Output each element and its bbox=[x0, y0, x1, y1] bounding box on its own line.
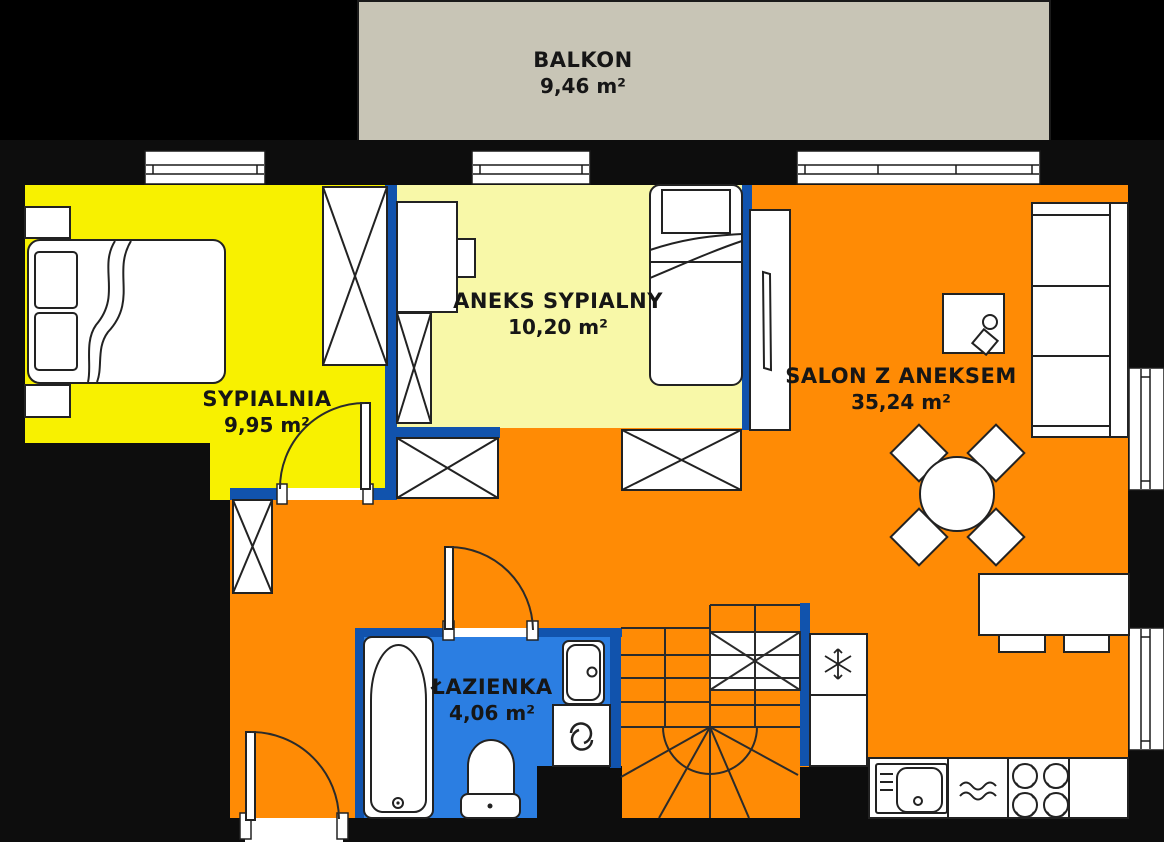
dining-table bbox=[920, 457, 994, 531]
pillow bbox=[662, 190, 730, 233]
room-label-balkon: BALKON 9,46 m² bbox=[533, 47, 632, 99]
nightstand-bottom bbox=[25, 385, 70, 417]
wall-cut-bottom-left bbox=[0, 443, 210, 842]
wardrobe-aneks bbox=[397, 313, 431, 423]
wall-aneks-bottom bbox=[397, 427, 500, 438]
wall-sypialnia-bottom-left bbox=[230, 488, 283, 500]
double-bed bbox=[28, 240, 225, 383]
wall-bottom bbox=[230, 818, 1164, 842]
tv-icon bbox=[763, 272, 771, 370]
stool bbox=[999, 635, 1045, 652]
door-leaf bbox=[246, 732, 255, 820]
pillow bbox=[35, 313, 77, 370]
wall-hall-left bbox=[210, 500, 230, 842]
wall-left bbox=[0, 140, 25, 472]
bathtub bbox=[364, 637, 433, 818]
room-area: 9,46 m² bbox=[533, 73, 632, 99]
room-area: 9,95 m² bbox=[202, 412, 331, 438]
kitchen-sink bbox=[876, 764, 947, 813]
room-area: 35,24 m² bbox=[785, 389, 1017, 415]
single-bed bbox=[650, 185, 742, 385]
wall-bath-left bbox=[355, 628, 364, 818]
tv-cabinet bbox=[750, 210, 790, 430]
door-leaf bbox=[361, 403, 370, 489]
wardrobe-salon bbox=[622, 430, 741, 490]
kitchen-counter bbox=[869, 758, 1128, 818]
window-aneks bbox=[472, 151, 590, 184]
room-area: 10,20 m² bbox=[453, 314, 663, 340]
room-name: SALON Z ANEKSEM bbox=[785, 363, 1017, 389]
desk-chair bbox=[457, 239, 475, 277]
window-salon-right-lower bbox=[1129, 628, 1164, 750]
window-sypialnia bbox=[145, 151, 265, 184]
room-label-salon: SALON Z ANEKSEM 35,24 m² bbox=[785, 363, 1017, 415]
work-desk bbox=[943, 294, 1004, 355]
room-name: SYPIALNIA bbox=[202, 386, 331, 412]
floor-plan: BALKON 9,46 m² SYPIALNIA 9,95 m² ANEKS S… bbox=[0, 0, 1164, 842]
wall-bath-top-right bbox=[533, 628, 622, 637]
wall-under-stairs-right bbox=[800, 767, 869, 842]
washbasin bbox=[563, 641, 604, 704]
washing-machine bbox=[553, 705, 610, 766]
room-area: 4,06 m² bbox=[431, 700, 552, 726]
stool bbox=[1064, 635, 1109, 652]
fridge bbox=[810, 634, 867, 695]
drain-icon bbox=[914, 797, 922, 805]
wardrobe-hall-vertical bbox=[233, 500, 272, 593]
room-label-lazienka: ŁAZIENKA 4,06 m² bbox=[431, 674, 552, 726]
window-salon-right-upper bbox=[1129, 368, 1164, 490]
kitchen-cabinet bbox=[810, 695, 867, 766]
wall-under-stairs-left bbox=[537, 766, 622, 818]
room-name: ŁAZIENKA bbox=[431, 674, 552, 700]
chair-seat-icon bbox=[983, 315, 997, 329]
room-name: BALKON bbox=[533, 47, 632, 73]
room-name: ANEKS SYPIALNY bbox=[453, 288, 663, 314]
wardrobe-sypialnia bbox=[323, 187, 387, 365]
wall-bath-top-left bbox=[355, 628, 449, 637]
room-label-sypialnia: SYPIALNIA 9,95 m² bbox=[202, 386, 331, 438]
wardrobe-hall-left bbox=[397, 438, 498, 498]
room-label-aneks: ANEKS SYPIALNY 10,20 m² bbox=[453, 288, 663, 340]
floor-plan-drawing bbox=[0, 0, 1164, 842]
pillow bbox=[35, 252, 77, 308]
wall-bath-stairs bbox=[610, 628, 621, 768]
sofa bbox=[1032, 203, 1128, 437]
door-leaf bbox=[445, 547, 453, 629]
nightstand-top bbox=[25, 207, 70, 238]
wall-stairs-right bbox=[800, 603, 810, 766]
balcony-area bbox=[358, 1, 1050, 148]
window-salon-top bbox=[797, 151, 1040, 184]
